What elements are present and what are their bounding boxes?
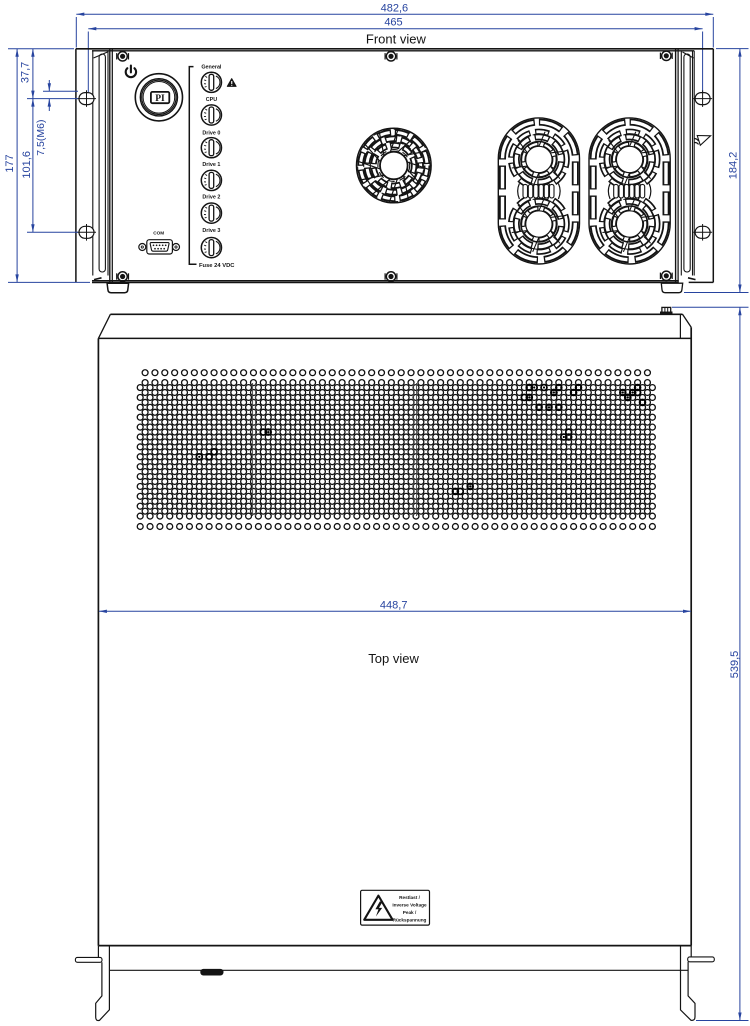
svg-text:Front view: Front view (366, 31, 427, 46)
svg-text:General: General (201, 65, 222, 71)
svg-text:Drive 3: Drive 3 (202, 228, 220, 234)
svg-text:COM: COM (153, 230, 164, 235)
svg-text:Drive 2: Drive 2 (202, 195, 220, 201)
svg-text:184,2: 184,2 (728, 152, 740, 180)
svg-text:Drive 1: Drive 1 (202, 162, 220, 168)
svg-text:Drive 0: Drive 0 (202, 130, 220, 136)
svg-text:Restlast /: Restlast / (399, 895, 421, 900)
svg-text:448,7: 448,7 (380, 599, 408, 611)
svg-text:PI: PI (155, 94, 165, 104)
svg-text:482,6: 482,6 (381, 2, 409, 14)
svg-text:Rückspannung: Rückspannung (393, 917, 427, 922)
svg-text:101,6: 101,6 (21, 151, 33, 179)
svg-text:Fuse 24 VDC: Fuse 24 VDC (199, 263, 235, 269)
svg-text:37,7: 37,7 (20, 62, 32, 83)
svg-text:539,5: 539,5 (729, 651, 741, 679)
svg-text:Inverse Voltage: Inverse Voltage (392, 902, 427, 907)
svg-text:465: 465 (384, 16, 402, 28)
svg-text:177: 177 (4, 154, 16, 172)
svg-text:Peak /: Peak / (403, 910, 417, 915)
svg-text:7,5(M6): 7,5(M6) (35, 120, 47, 156)
svg-text:CPU: CPU (206, 97, 217, 103)
svg-text:Top view: Top view (368, 651, 419, 666)
